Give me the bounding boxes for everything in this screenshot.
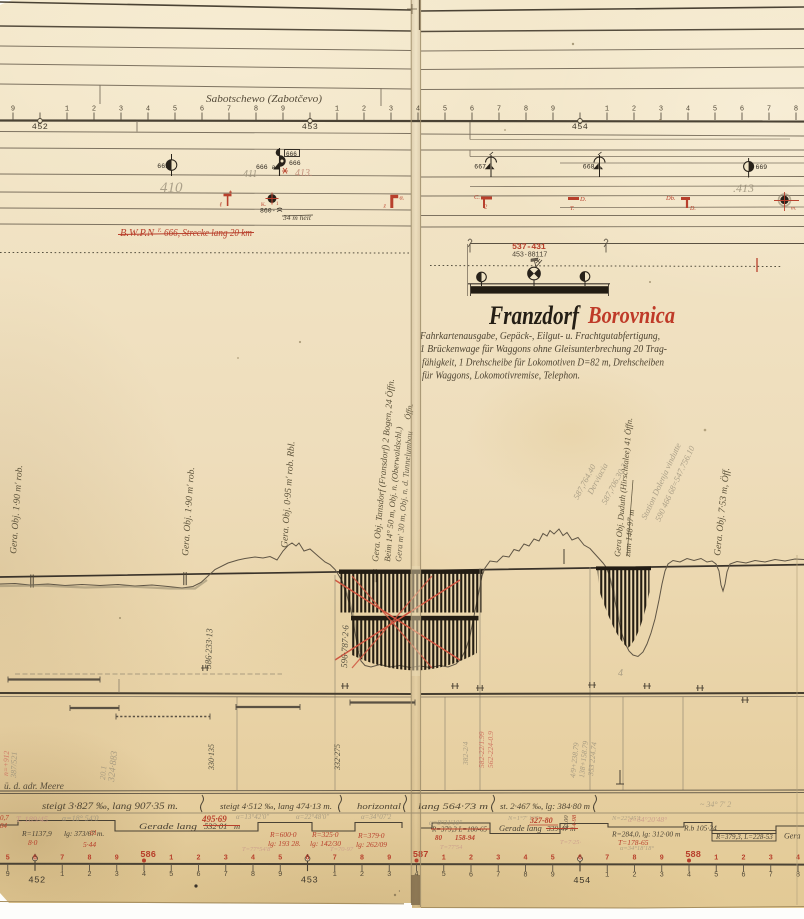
svg-text:860-: 860-	[260, 208, 276, 215]
svg-text:1 Brückenwage für Waggons ohne: 1 Brückenwage für Waggons ohne Gleisunte…	[420, 344, 668, 355]
svg-text:666: 666	[289, 160, 301, 167]
svg-text:m.: m.	[791, 206, 796, 212]
svg-text:1: 1	[169, 855, 173, 863]
svg-text:Borovnica: Borovnica	[587, 302, 675, 329]
svg-text:7: 7	[767, 106, 771, 114]
svg-text:7: 7	[224, 871, 228, 879]
svg-text:α.: α.	[400, 195, 405, 202]
svg-text:N=22°45′1: N=22°45′1	[611, 815, 641, 822]
svg-text:666 a: 666 a	[256, 164, 276, 171]
svg-text:387/521: 387/521	[9, 752, 19, 780]
svg-text:324·883: 324·883	[107, 750, 120, 783]
svg-text:4: 4	[523, 855, 527, 863]
svg-text:st. 2·467 ‰, lg: 384·80 m: st. 2·467 ‰, lg: 384·80 m	[500, 801, 590, 811]
svg-text:454: 454	[573, 876, 590, 886]
svg-text:D.: D.	[579, 196, 587, 203]
svg-text:α=34°18′18°: α=34°18′18°	[620, 845, 654, 852]
svg-text:61: 61	[90, 829, 97, 837]
svg-text:382-2/4: 382-2/4	[461, 741, 470, 766]
svg-text:z: z	[383, 203, 387, 210]
svg-text:588: 588	[685, 850, 701, 860]
svg-text:9: 9	[281, 106, 285, 114]
svg-text:C.: C.	[474, 194, 480, 201]
svg-text:8: 8	[251, 871, 255, 879]
svg-text:8: 8	[360, 855, 364, 863]
svg-text:Gera. Obj. 0·95 m′ rob. Rbl.: Gera. Obj. 0·95 m′ rob. Rbl.	[280, 441, 297, 548]
svg-text:N=1°7′ 1°7′: N=1°7′ 1°7′	[507, 815, 540, 822]
svg-text:2: 2	[362, 106, 366, 114]
svg-text:1: 1	[333, 871, 337, 879]
svg-text:3: 3	[224, 855, 228, 863]
svg-text:582-22/1.99: 582-22/1.99	[477, 731, 486, 768]
svg-text:6: 6	[200, 106, 204, 114]
svg-text:r.: r.	[158, 226, 162, 234]
svg-text:6: 6	[578, 855, 582, 863]
svg-text:5: 5	[713, 106, 717, 114]
svg-text:7: 7	[769, 872, 773, 880]
svg-text:158-94: 158-94	[455, 834, 475, 842]
svg-text:4: 4	[416, 106, 420, 114]
svg-text:668: 668	[583, 164, 595, 171]
svg-text:horizontal: horizontal	[357, 801, 402, 811]
svg-text:5: 5	[551, 855, 555, 863]
svg-text:1: 1	[276, 202, 279, 207]
svg-text:410: 410	[160, 180, 183, 196]
svg-text:0,7: 0,7	[0, 814, 9, 822]
svg-text:5: 5	[443, 106, 447, 114]
svg-text:9: 9	[278, 871, 282, 879]
svg-text:80: 80	[435, 834, 443, 842]
svg-text:T=77°54′8: T=77°54′8	[242, 846, 271, 853]
svg-text:4: 4	[618, 668, 623, 679]
svg-text:537-431: 537-431	[512, 242, 546, 252]
svg-text:α=22°48′0″: α=22°48′0″	[296, 813, 329, 821]
svg-text:ℓ: ℓ	[219, 202, 223, 209]
svg-text:2: 2	[360, 871, 364, 879]
svg-text:7: 7	[333, 855, 337, 863]
svg-text:α=34°07′2: α=34°07′2	[361, 813, 392, 821]
svg-text:2: 2	[632, 106, 636, 114]
svg-text:R=325·0: R=325·0	[311, 830, 339, 839]
svg-text:7: 7	[60, 855, 64, 863]
svg-text:7: 7	[227, 106, 231, 114]
svg-text:452: 452	[28, 875, 45, 885]
svg-text:3: 3	[496, 855, 500, 863]
svg-text:1: 1	[65, 106, 69, 114]
svg-text:8: 8	[524, 106, 528, 114]
svg-text:453: 453	[302, 122, 319, 132]
svg-text:9: 9	[11, 106, 15, 114]
svg-text:4: 4	[687, 871, 691, 879]
svg-text:Fahrkartenausgabe, Gepäck-, Ei: Fahrkartenausgabe, Gepäck-, Eilgut- u. F…	[419, 331, 660, 342]
svg-text:666: 666	[286, 151, 297, 158]
svg-text:Franzdorf: Franzdorf	[488, 301, 581, 330]
svg-text:für Waggons, Lokomotivremise,: für Waggons, Lokomotivremise, Telephon.	[422, 371, 580, 382]
svg-text:3: 3	[659, 106, 663, 114]
svg-text:8: 8	[254, 106, 258, 114]
svg-text:6: 6	[470, 106, 474, 114]
svg-text:lg: 193 28.: lg: 193 28.	[268, 839, 301, 848]
svg-text:·: ·	[398, 887, 401, 896]
svg-text:9: 9	[551, 871, 555, 879]
svg-text:9: 9	[551, 106, 555, 114]
svg-text:454: 454	[572, 122, 589, 132]
svg-text:5·44: 5·44	[83, 840, 96, 849]
svg-text:lg: 373/67 m.: lg: 373/67 m.	[64, 829, 104, 838]
svg-text:3: 3	[660, 871, 664, 879]
svg-text:8: 8	[796, 872, 800, 880]
svg-text:5: 5	[173, 106, 177, 114]
svg-text:3: 3	[115, 871, 119, 879]
svg-text:R=1137,9: R=1137,9	[21, 829, 52, 838]
svg-text:T.: T.	[570, 206, 574, 212]
svg-text:7: 7	[605, 855, 609, 863]
svg-text:84: 84	[0, 822, 8, 830]
svg-text:T=77′54: T=77′54	[440, 844, 463, 851]
svg-text:4: 4	[796, 855, 800, 863]
svg-text:2: 2	[469, 855, 473, 863]
svg-text:6: 6	[741, 872, 745, 880]
svg-text:8·0: 8·0	[28, 838, 38, 847]
svg-text:3: 3	[769, 855, 773, 863]
svg-text:2: 2	[196, 855, 200, 863]
svg-text:332·275: 332·275	[333, 744, 342, 771]
svg-text:6: 6	[196, 871, 200, 879]
svg-text:4: 4	[142, 871, 146, 879]
svg-text:lang 564·73 m: lang 564·73 m	[418, 801, 488, 811]
svg-text:Gerade lang: Gerade lang	[139, 821, 197, 831]
svg-text:5: 5	[6, 855, 10, 863]
svg-text:5: 5	[714, 872, 718, 880]
svg-text:9: 9	[115, 855, 119, 863]
svg-text:3: 3	[387, 871, 391, 879]
svg-text:7: 7	[496, 871, 500, 879]
svg-text:T=70-97: T=70-97	[330, 846, 354, 853]
svg-text:R=600·0: R=600·0	[269, 830, 297, 839]
svg-text:5: 5	[442, 871, 446, 879]
svg-text:4: 4	[686, 106, 690, 114]
svg-text:Sabotschewo (Zabotčevo): Sabotschewo (Zabotčevo)	[206, 93, 322, 105]
svg-text:1: 1	[714, 855, 718, 863]
svg-text:6: 6	[305, 855, 309, 863]
svg-text:667: 667	[474, 164, 486, 171]
svg-text:1: 1	[442, 855, 446, 863]
svg-text:453: 453	[301, 876, 318, 886]
svg-text:9: 9	[660, 855, 664, 863]
svg-text:Öffn.: Öffn.	[403, 403, 415, 421]
svg-text:9: 9	[6, 871, 10, 879]
svg-text:586·233·13: 586·233·13	[203, 628, 214, 669]
svg-text:1: 1	[605, 106, 609, 114]
svg-text:8: 8	[632, 855, 636, 863]
svg-text:Gera. Obj. 1·90 m′ rob.: Gera. Obj. 1·90 m′ rob.	[181, 467, 197, 556]
svg-text:5: 5	[169, 871, 173, 879]
svg-text:3: 3	[389, 106, 393, 114]
svg-text:α=8°31′10″: α=8°31′10″	[429, 819, 462, 827]
svg-text:~ 34° 7′ 2: ~ 34° 7′ 2	[700, 800, 731, 809]
svg-text:34 m heit: 34 m heit	[282, 213, 312, 222]
svg-text:Gera. Obj. 7·53 m, Öff.: Gera. Obj. 7·53 m, Öff.	[711, 467, 732, 556]
svg-text:669: 669	[756, 164, 768, 171]
svg-text:Db.: Db.	[665, 195, 676, 202]
svg-text:562-224-0.9: 562-224-0.9	[486, 731, 495, 768]
svg-text:4: 4	[251, 855, 255, 863]
svg-text:3: 3	[119, 106, 123, 114]
svg-text:413.: 413.	[295, 168, 313, 179]
svg-text:14-98: 14-98	[571, 814, 578, 830]
svg-text:495·69: 495·69	[201, 814, 227, 824]
svg-text:lg: 262/09: lg: 262/09	[356, 840, 387, 849]
svg-text:α=13°42′0″: α=13°42′0″	[236, 813, 269, 821]
svg-text:steigt 4·512 ‰, lang 474·13 m: steigt 4·512 ‰, lang 474·13 m.	[220, 801, 332, 811]
svg-text:9: 9	[387, 855, 391, 863]
svg-text:62.00: 62.00	[563, 815, 570, 830]
svg-text:1: 1	[60, 871, 64, 879]
svg-text:8: 8	[87, 855, 91, 863]
svg-text:2: 2	[87, 871, 91, 879]
svg-text:.413: .413	[733, 181, 754, 195]
svg-text:R=379,3, L=228-53: R=379,3, L=228-53	[715, 833, 773, 841]
svg-text:452: 452	[32, 122, 49, 132]
svg-text:330·135: 330·135	[207, 744, 216, 771]
svg-text:1: 1	[605, 871, 609, 879]
svg-text:α=18° 54′0: α=18° 54′0	[62, 814, 99, 823]
svg-text:8: 8	[794, 106, 798, 114]
svg-text:6: 6	[33, 855, 37, 863]
svg-text:2: 2	[632, 871, 636, 879]
svg-text:6: 6	[469, 871, 473, 879]
svg-text:2: 2	[741, 855, 745, 863]
svg-text:Gera. Obj. 1·90 m′ rob.: Gera. Obj. 1·90 m′ rob.	[9, 465, 25, 554]
svg-text:7: 7	[497, 106, 501, 114]
svg-text:6: 6	[740, 106, 744, 114]
svg-text:2: 2	[92, 106, 96, 114]
svg-text:R.b 105·24: R.b 105·24	[683, 824, 717, 833]
svg-text:5: 5	[278, 855, 282, 863]
svg-text:D.: D.	[689, 206, 696, 212]
svg-text:411: 411	[243, 169, 257, 180]
svg-text:R=379·0: R=379·0	[357, 831, 385, 840]
svg-text:Gera: Gera	[784, 832, 800, 841]
svg-text:596·787·2·6: 596·787·2·6	[339, 624, 351, 668]
svg-text:steigt 3·827 ‰, lang 907·35: steigt 3·827 ‰, lang 907·35 m.	[42, 801, 178, 811]
svg-text:4: 4	[146, 106, 150, 114]
svg-text:586: 586	[140, 850, 156, 860]
svg-text:T. 189/45: T. 189/45	[16, 814, 48, 824]
svg-text:1: 1	[335, 106, 339, 114]
svg-text:T=7·25·: T=7·25·	[560, 839, 581, 846]
svg-text:453·88117: 453·88117	[512, 252, 547, 260]
svg-text:fähigkeit, 1 Drehscheibe für L: fähigkeit, 1 Drehscheibe für Lokomotiven…	[422, 358, 664, 369]
svg-text:2: 2	[484, 204, 488, 211]
svg-text:8: 8	[523, 871, 527, 879]
